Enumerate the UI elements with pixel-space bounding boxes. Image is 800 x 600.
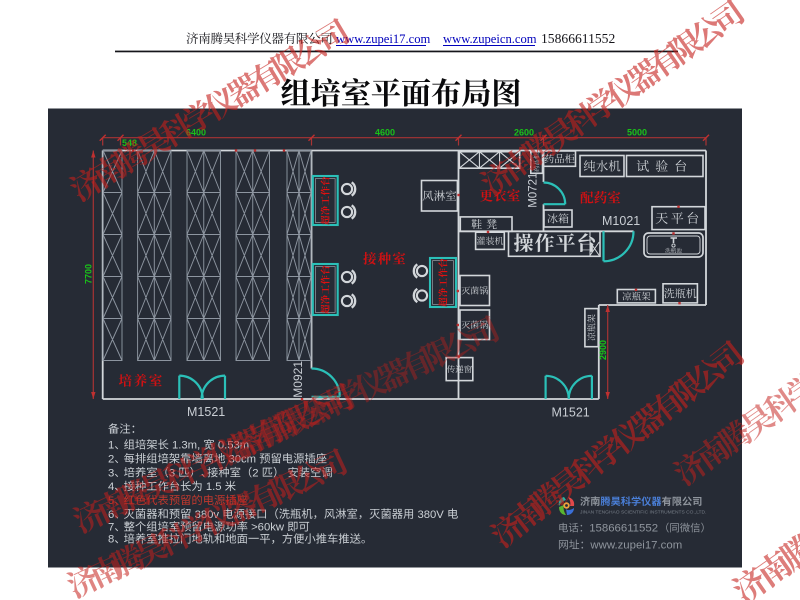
svg-text:8: 8: [108, 534, 114, 546]
svg-text:2: 2: [252, 467, 258, 479]
svg-text:M1021: M1021: [602, 214, 640, 228]
svg-text:4600: 4600: [375, 127, 395, 137]
svg-text:1: 1: [108, 440, 114, 452]
svg-text:2600: 2600: [514, 127, 534, 137]
svg-text:7700: 7700: [84, 264, 94, 284]
svg-text:15866611552: 15866611552: [541, 31, 615, 46]
svg-text:www.zupeicn.com: www.zupeicn.com: [443, 32, 537, 46]
svg-text:www.zupei17.com: www.zupei17.com: [589, 540, 682, 552]
svg-text:3: 3: [108, 467, 114, 479]
svg-text:www.zupei17.com: www.zupei17.com: [336, 32, 431, 46]
svg-text:380V: 380V: [417, 509, 444, 521]
svg-text:M1521: M1521: [552, 406, 590, 420]
svg-text:M1521: M1521: [187, 405, 225, 419]
svg-text:>60kw: >60kw: [251, 522, 285, 534]
svg-text:15866611552: 15866611552: [589, 523, 658, 535]
svg-text:M0721: M0721: [527, 173, 539, 208]
svg-text:4: 4: [108, 481, 114, 493]
svg-text:JINAN TENGHAO SCIENTIFIC INSTR: JINAN TENGHAO SCIENTIFIC INSTRUMENTS CO.…: [580, 510, 706, 516]
svg-text:2: 2: [108, 454, 114, 466]
svg-text:5000: 5000: [627, 127, 647, 137]
svg-text:1.3m,: 1.3m,: [172, 440, 200, 452]
svg-text:1.5: 1.5: [206, 481, 222, 493]
svg-text:7: 7: [108, 522, 114, 534]
svg-text:2900: 2900: [598, 340, 608, 360]
svg-text:M0921: M0921: [291, 361, 305, 398]
